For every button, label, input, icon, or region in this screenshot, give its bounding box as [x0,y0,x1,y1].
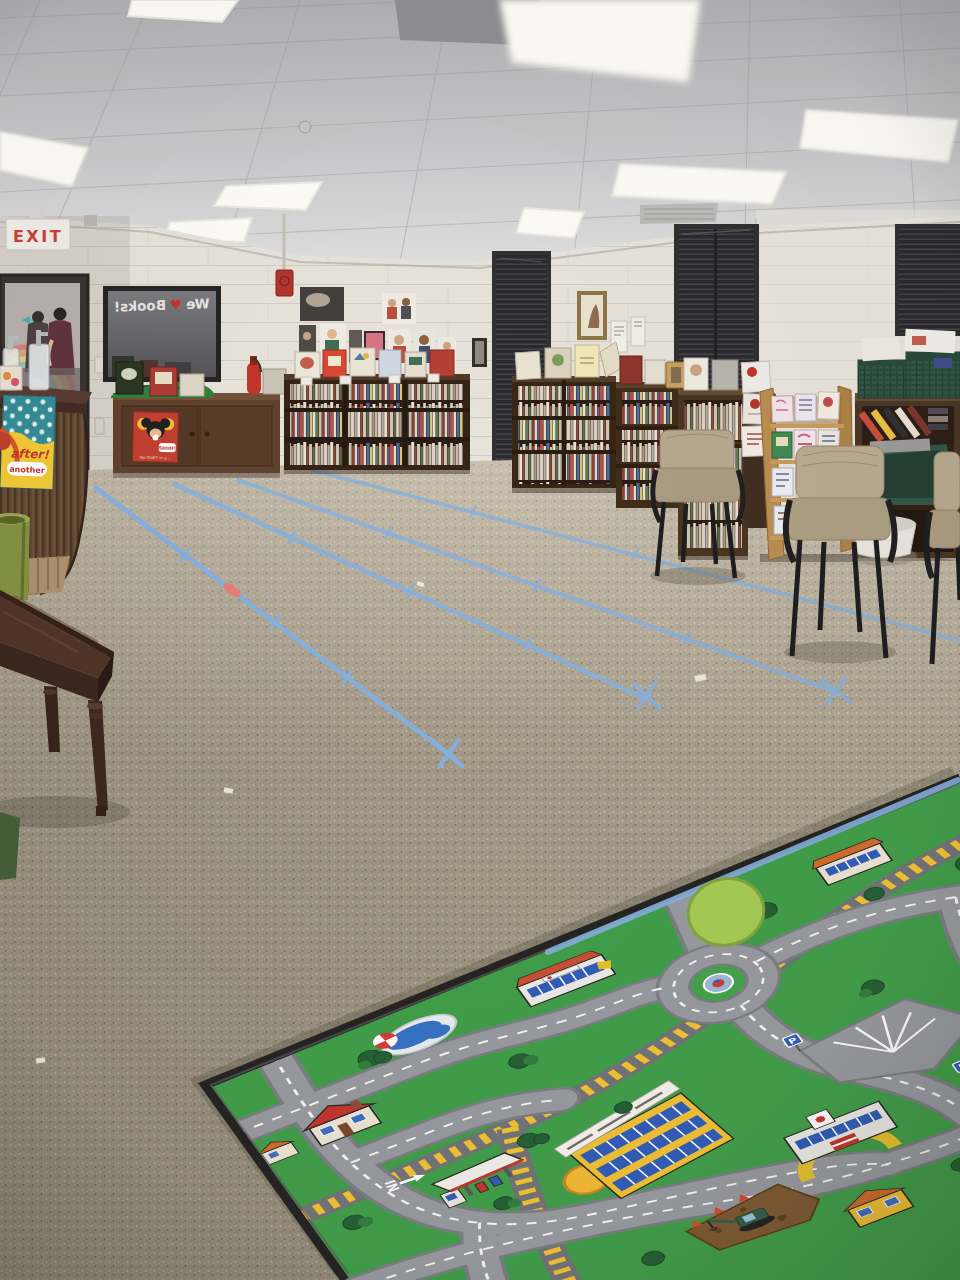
warm-tint [0,0,960,1280]
library-room-photo: EXIT We♥Books [0,0,960,1280]
scene: EXIT We♥Books [0,0,960,1280]
